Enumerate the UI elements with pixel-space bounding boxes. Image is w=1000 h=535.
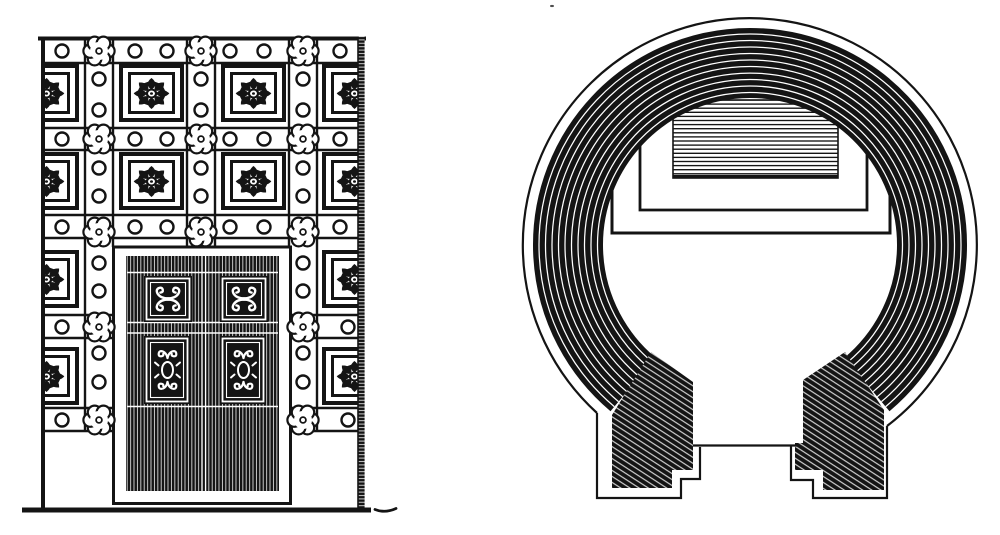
ground-line <box>22 508 396 513</box>
door-panel-upper-right <box>220 276 268 322</box>
engraving-canvas <box>0 0 1000 535</box>
door <box>114 247 291 504</box>
ink-speck <box>550 5 554 7</box>
door-panel-lower-left <box>144 336 190 404</box>
engraving-plate <box>0 0 1000 535</box>
door-panel-lower-right <box>220 336 266 404</box>
doorway-elevation-figure <box>16 37 396 513</box>
chamber-wall-ring <box>539 34 961 407</box>
door-panel-upper-left <box>144 276 192 322</box>
circular-plan-figure <box>523 5 977 498</box>
